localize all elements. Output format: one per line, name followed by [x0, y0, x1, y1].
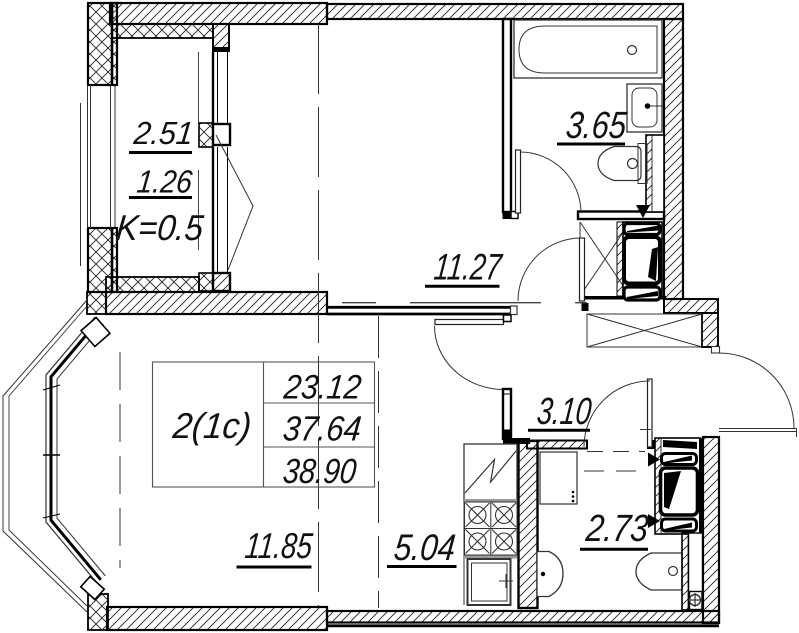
svg-text:3.10: 3.10 — [535, 391, 593, 433]
svg-text:3.65: 3.65 — [564, 105, 629, 147]
svg-text:1.26: 1.26 — [135, 164, 194, 200]
svg-text:11.27: 11.27 — [432, 246, 504, 288]
svg-text:2.51: 2.51 — [131, 115, 195, 151]
svg-text:2.73: 2.73 — [583, 508, 650, 550]
svg-text:K=0.5: K=0.5 — [114, 207, 206, 248]
svg-text:38.90: 38.90 — [281, 452, 358, 491]
svg-text:5.04: 5.04 — [392, 526, 457, 568]
svg-text:23.12: 23.12 — [281, 369, 363, 407]
svg-text:11.85: 11.85 — [243, 525, 315, 566]
svg-text:37.64: 37.64 — [281, 410, 363, 449]
svg-text:2(1c): 2(1c) — [170, 405, 253, 446]
